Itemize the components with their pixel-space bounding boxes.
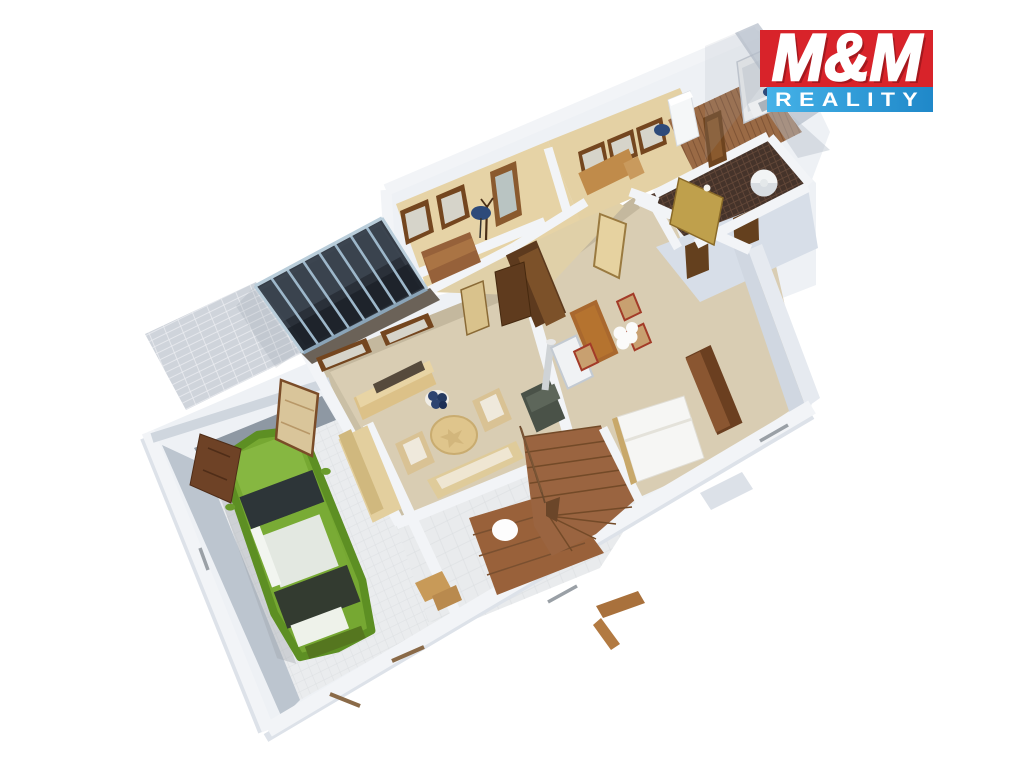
svg-text:REALITY: REALITY — [775, 90, 925, 111]
svg-text:M&M: M&M — [772, 20, 924, 94]
